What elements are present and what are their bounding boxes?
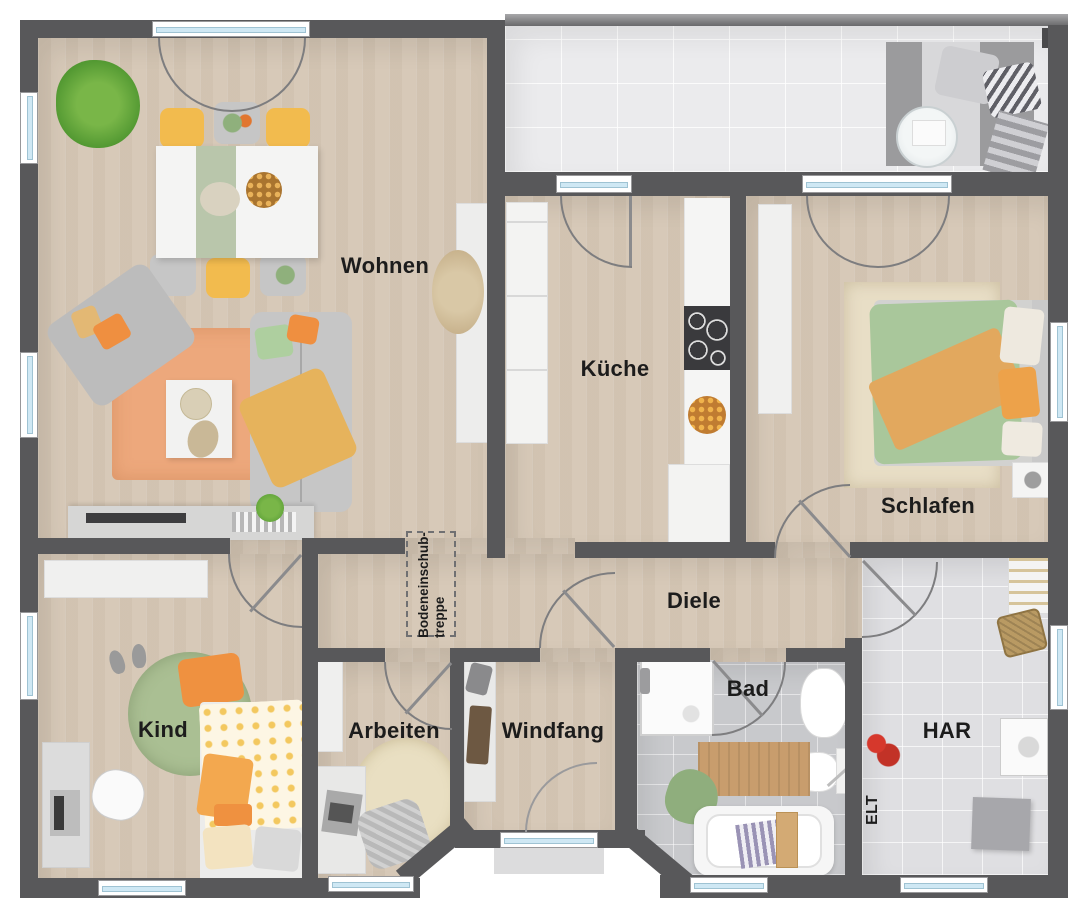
bedroom-wardrobe bbox=[758, 204, 792, 414]
palm-plant bbox=[56, 60, 140, 148]
room-label-bad: Bad bbox=[727, 678, 769, 700]
bath-caddy bbox=[776, 812, 798, 868]
window-arbeiten-bottom bbox=[328, 876, 414, 892]
bathroom-sink bbox=[800, 668, 848, 738]
shower bbox=[640, 660, 714, 736]
terrace-tray bbox=[912, 120, 946, 146]
fruit-bowl-kitchen bbox=[688, 396, 726, 434]
window-wohnen-left-1 bbox=[20, 92, 38, 164]
window-bad-bottom bbox=[690, 877, 768, 893]
room-label-windfang: Windfang bbox=[502, 720, 604, 742]
sofa-pillow-orange bbox=[286, 314, 320, 346]
office-shelf bbox=[315, 660, 343, 752]
floor-plan: Wohnen Küche Schlafen Diele Kind Arbeite… bbox=[0, 0, 1090, 915]
table-centerpiece bbox=[200, 182, 240, 216]
entry-mirror bbox=[466, 705, 492, 764]
dining-chair-yellow-3 bbox=[206, 258, 250, 298]
wall-arbeiten-top bbox=[318, 648, 385, 662]
kitchen-lower-cabinet bbox=[668, 464, 730, 544]
window-har-bottom bbox=[900, 877, 988, 893]
kids-pillow-beige bbox=[202, 824, 253, 870]
window-kind-bottom bbox=[98, 880, 186, 896]
shower-faucet bbox=[640, 668, 650, 694]
fruit-bowl-table bbox=[246, 172, 282, 208]
washing-machine bbox=[1000, 718, 1048, 776]
kids-pillow-orange bbox=[177, 652, 245, 708]
wall-wohnen-kind-b bbox=[302, 538, 405, 554]
wall-kind-arbeiten bbox=[302, 554, 318, 878]
laptop bbox=[321, 790, 362, 837]
room-label-kueche: Küche bbox=[581, 358, 650, 380]
windfang-door-threshold bbox=[540, 648, 615, 662]
wall-bad-top-a bbox=[630, 648, 710, 662]
wall-bad-top-b bbox=[786, 648, 848, 662]
pillow-orange bbox=[997, 366, 1040, 420]
wall-kueche-schlafen bbox=[730, 196, 746, 558]
room-label-har: HAR bbox=[923, 720, 972, 742]
window-har-right bbox=[1050, 625, 1068, 710]
nightstand bbox=[1012, 462, 1050, 498]
wall-windfang-bad bbox=[615, 648, 637, 830]
room-label-elt: ELT bbox=[865, 795, 881, 825]
window-schlafen-right bbox=[1050, 322, 1068, 422]
vacuum-cleaner bbox=[861, 726, 904, 773]
dining-chair-yellow-2 bbox=[266, 108, 310, 148]
loft-ladder-label-line2: treppe bbox=[432, 532, 448, 638]
kids-pillow-gray bbox=[252, 826, 302, 873]
pampas-plant bbox=[432, 250, 484, 334]
room-label-wohnen: Wohnen bbox=[341, 255, 429, 277]
loft-ladder-label: Bodeneinschub- treppe bbox=[416, 532, 448, 638]
window-wohnen-top bbox=[152, 21, 310, 37]
wall-schlafen-south-b bbox=[850, 542, 1048, 558]
wall-arbeiten-windfang bbox=[450, 648, 464, 830]
room-label-arbeiten: Arbeiten bbox=[348, 720, 440, 742]
har-door-threshold bbox=[845, 558, 862, 638]
pillow-white-2 bbox=[1001, 421, 1043, 457]
wall-schlafen-south-a bbox=[746, 542, 775, 558]
kids-pillow-bar bbox=[214, 804, 252, 826]
room-label-diele: Diele bbox=[667, 590, 721, 612]
entrance-step bbox=[494, 848, 604, 874]
terrace-door-kueche bbox=[556, 175, 632, 193]
kids-monitor bbox=[50, 790, 80, 836]
pillow-white-1 bbox=[999, 306, 1045, 366]
wall-bad-har bbox=[845, 638, 862, 880]
har-shelf bbox=[1008, 556, 1050, 614]
wall-kueche-diele bbox=[575, 542, 746, 558]
entrance-door bbox=[500, 832, 598, 848]
window-wohnen-left-2 bbox=[20, 352, 38, 438]
room-label-kind: Kind bbox=[138, 719, 188, 741]
window-kind-left bbox=[20, 612, 38, 700]
wall-terrace-edge bbox=[505, 14, 1068, 26]
gray-storage-box bbox=[971, 797, 1031, 851]
wall-exterior-right bbox=[1048, 25, 1068, 898]
tv bbox=[86, 513, 186, 523]
small-plant bbox=[256, 494, 284, 522]
coffee-table-bowl bbox=[180, 388, 212, 420]
door-leaf-kueche-terrace bbox=[629, 196, 632, 266]
kids-wardrobe bbox=[44, 560, 208, 598]
dining-chair-gray-3 bbox=[260, 254, 306, 296]
bad-door-threshold bbox=[710, 648, 786, 662]
kitchen-tall-cabinet bbox=[506, 202, 548, 444]
dining-chair-yellow-1 bbox=[160, 108, 204, 148]
wall-wohnen-kind-a bbox=[38, 538, 230, 554]
room-label-schlafen: Schlafen bbox=[881, 495, 975, 517]
arbeiten-door-threshold bbox=[385, 648, 450, 662]
terrace-door-schlafen bbox=[802, 175, 952, 193]
wall-wohnen-kueche bbox=[487, 20, 505, 558]
wall-windfang-top bbox=[462, 648, 540, 662]
cooktop bbox=[684, 306, 730, 370]
loft-ladder-label-line1: Bodeneinschub- bbox=[416, 532, 432, 638]
